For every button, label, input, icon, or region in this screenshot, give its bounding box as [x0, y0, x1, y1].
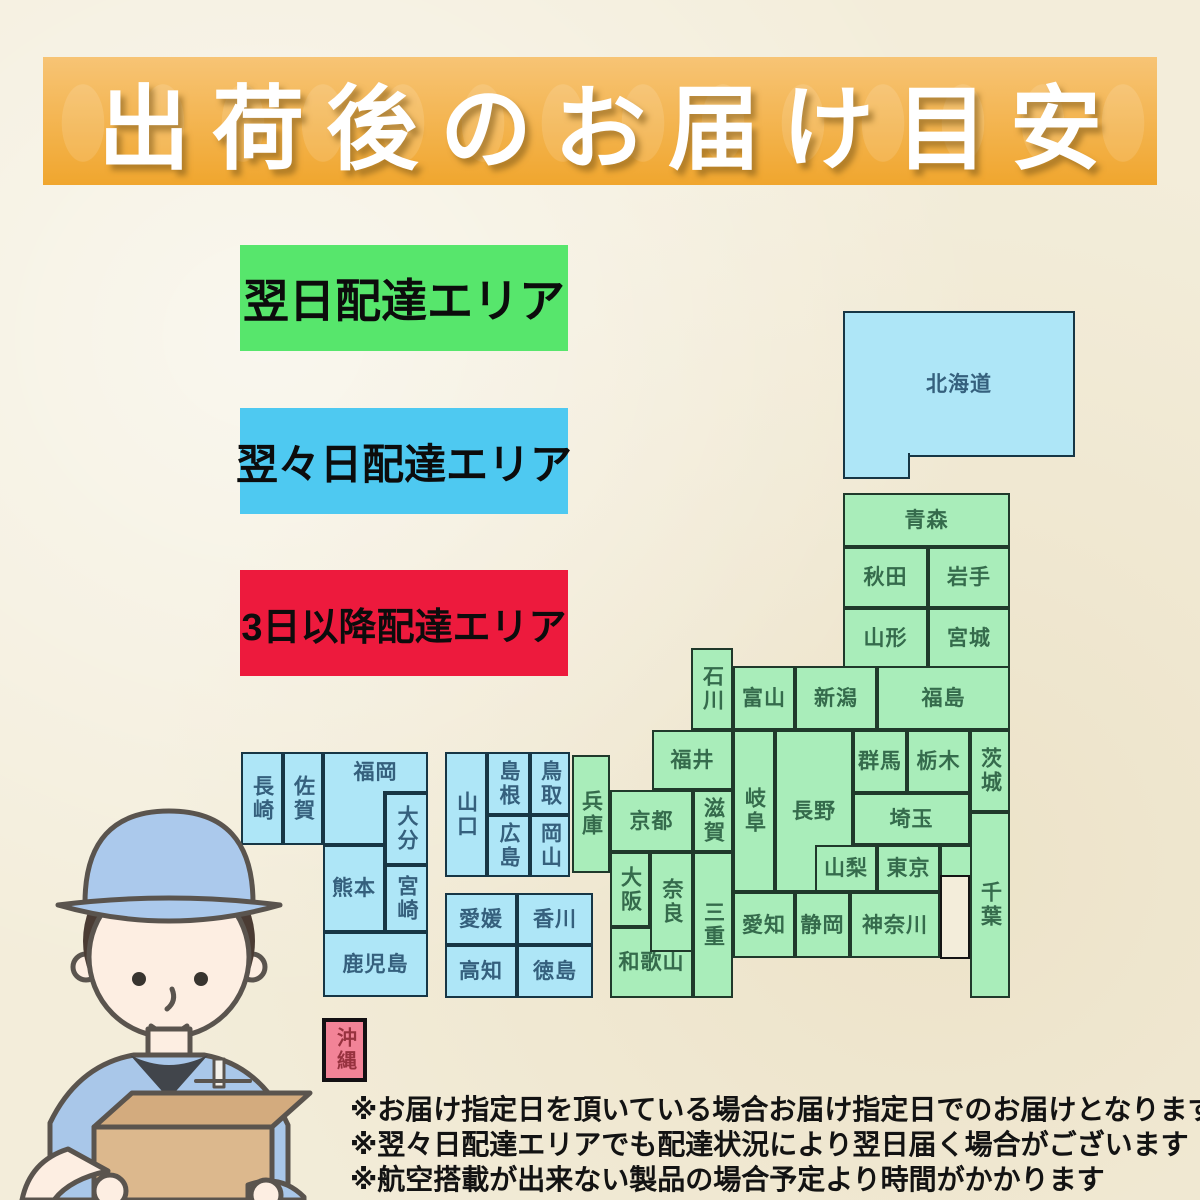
pref-ishikawa: 石川 [691, 648, 733, 730]
pref-ehime: 愛媛 [445, 893, 517, 945]
pref-nara: 奈良 [650, 852, 693, 952]
pref-kagawa: 香川 [517, 893, 593, 945]
pref-saitama: 埼玉 [853, 793, 970, 845]
pref-tochigi: 栃木 [907, 730, 970, 793]
legend-two-day: 翌々日配達エリア [240, 408, 568, 514]
infographic-page: 出荷後のお届け目安 翌日配達エリア 翌々日配達エリア 3日以降配達エリア 北海道… [0, 0, 1200, 1200]
pref-niigata: 新潟 [795, 666, 877, 730]
eye-right [194, 972, 208, 986]
pref-aichi: 愛知 [733, 892, 795, 958]
delivery-person-illustration [8, 745, 340, 1200]
pref-tottori: 鳥取 [530, 752, 570, 815]
pref-tokyo: 東京 [877, 845, 940, 892]
pref-okayama: 岡山 [530, 815, 570, 877]
pref-yamagata: 山形 [843, 608, 928, 668]
pref-yamanashi: 山梨 [815, 845, 877, 892]
tokyo-bay-inlet [940, 875, 970, 959]
pref-ibaraki: 茨城 [970, 730, 1010, 812]
legend-three-day-plus: 3日以降配達エリア [240, 570, 568, 676]
pref-miyazaki: 宮崎 [385, 865, 428, 932]
pref-gunma: 群馬 [853, 730, 907, 793]
pref-shiga: 滋賀 [693, 790, 733, 852]
pref-kyoto: 京都 [610, 790, 693, 852]
pref-fukui: 福井 [652, 730, 733, 790]
footnote-line: ※お届け指定日を頂いている場合お届け指定日でのお届けとなります [350, 1092, 1200, 1127]
pref-hokkaido: 北海道 [843, 311, 1075, 457]
pref-akita: 秋田 [843, 547, 928, 608]
page-title: 出荷後のお届け目安 [76, 57, 1124, 185]
footnote-line: ※航空搭載が出来ない製品の場合予定より時間がかかります [350, 1162, 1200, 1197]
pref-yamaguchi: 山口 [445, 752, 487, 877]
fukuoka-extension [323, 791, 385, 845]
pref-kanagawa: 神奈川 [850, 892, 940, 958]
footnote-line: ※翌々日配達エリアでも配達状況により翌日届く場合がございます [350, 1127, 1200, 1162]
coastline-filler [940, 845, 972, 877]
pref-miyagi: 宮城 [928, 608, 1010, 668]
pref-toyama: 富山 [733, 666, 795, 730]
pref-chiba: 千葉 [970, 812, 1010, 998]
pref-tokushima: 徳島 [517, 945, 593, 998]
pref-oita: 大分 [385, 793, 428, 865]
pref-osaka: 大阪 [610, 852, 650, 927]
hand-left [94, 1175, 126, 1200]
box-top [94, 1093, 310, 1127]
pref-hyogo: 兵庫 [572, 755, 610, 873]
legend-next-day: 翌日配達エリア [240, 245, 568, 351]
pref-mie: 三重 [693, 852, 733, 998]
footnotes: ※お届け指定日を頂いている場合お届け指定日でのお届けとなります ※翌々日配達エリ… [350, 1092, 1200, 1197]
eye-left [132, 972, 146, 986]
title-banner: 出荷後のお届け目安 [43, 57, 1157, 185]
pref-fukushima: 福島 [877, 666, 1010, 730]
pref-aomori: 青森 [843, 493, 1010, 547]
pref-hiroshima: 広島 [487, 815, 530, 877]
pref-kochi: 高知 [445, 945, 517, 998]
pref-iwate: 岩手 [928, 547, 1010, 608]
hokkaido-tab [843, 453, 910, 479]
pref-shizuoka: 静岡 [795, 892, 850, 958]
cap-dome [85, 811, 253, 903]
hand-right [251, 1180, 281, 1200]
pref-shimane: 島根 [487, 752, 530, 815]
pref-gifu: 岐阜 [733, 730, 775, 892]
